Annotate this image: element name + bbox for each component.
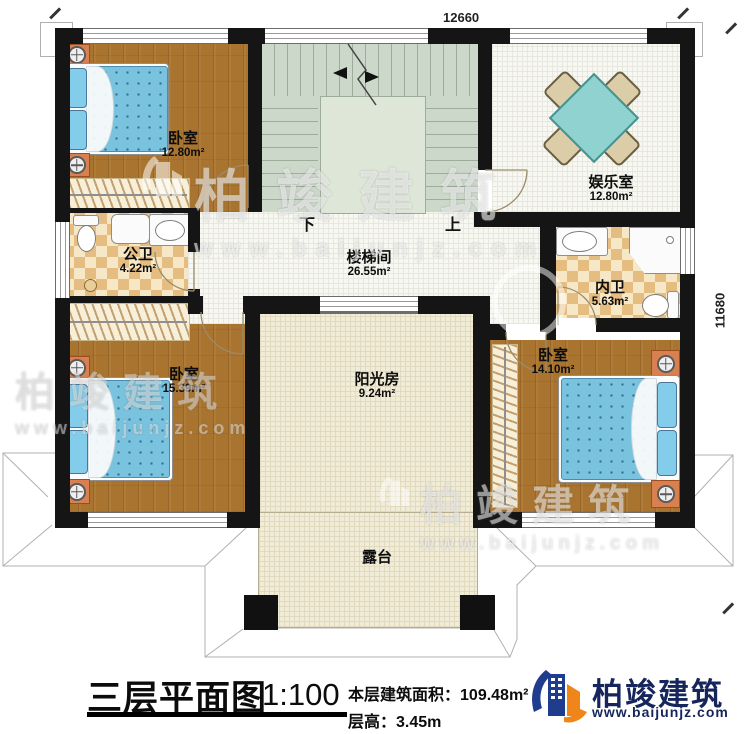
pillow — [67, 68, 87, 108]
room-area: 14.10m² — [532, 364, 575, 377]
room-label-terrace: 露台 — [362, 549, 392, 566]
wall-private-bath-south — [596, 318, 695, 332]
wall-bedroom-nw-east — [248, 44, 262, 212]
wall-bedroom-se-north-a — [490, 324, 506, 340]
room-name: 露台 — [362, 549, 392, 566]
room-name: 公卫 — [120, 246, 156, 263]
wall-private-bath-west — [540, 227, 556, 332]
floor-area-line: 本层建筑面积：109.48m² — [348, 681, 529, 705]
stair-left-flight — [262, 96, 318, 212]
nightstand — [651, 350, 680, 377]
pillow — [67, 110, 87, 150]
room-area: 12.80m² — [588, 191, 633, 204]
room-area: 9.24m² — [354, 388, 399, 401]
room-name: 卧室 — [162, 130, 205, 147]
window-private-bathroom — [680, 228, 695, 274]
window-sunroom-door — [320, 296, 418, 314]
company-logo-icon — [528, 662, 590, 726]
room-name: 娱乐室 — [588, 174, 633, 191]
floor-sunroom — [260, 314, 473, 512]
floor-drain-icon — [84, 279, 97, 292]
wall-bedroom-se-north-b — [546, 324, 556, 340]
room-label-bedroom-nw: 卧室 12.80m² — [162, 130, 205, 160]
room-label-stair-hall: 楼梯间 26.55m² — [346, 249, 391, 279]
lamp-icon — [657, 485, 675, 503]
toilet — [77, 225, 96, 252]
wall-sunroom-east — [473, 296, 490, 512]
stair-landing — [320, 96, 426, 214]
wall-sunroom-north-a — [260, 296, 320, 314]
room-label-public-bathroom: 公卫 4.22m² — [120, 246, 156, 276]
window-bedroom-sw — [88, 512, 227, 528]
bed-sheet — [631, 378, 657, 480]
room-area: 5.63m² — [592, 296, 628, 309]
room-name: 内卫 — [592, 279, 628, 296]
room-label-private-bathroom: 内卫 5.63m² — [592, 279, 628, 309]
wardrobe-rod — [504, 347, 506, 505]
nightstand — [651, 480, 680, 508]
wardrobe-rod — [66, 321, 187, 323]
wall-sunroom-west — [245, 296, 260, 512]
lamp-icon — [68, 359, 86, 377]
toilet — [642, 294, 669, 317]
wardrobe-bedroom-nw — [63, 178, 190, 212]
window-stairwell — [265, 28, 428, 44]
bed-bedroom-se — [558, 375, 680, 483]
floor-plan-canvas: 卧室 12.80m² 娱乐室 12.80m² 公卫 4.22m² 楼梯间 26.… — [0, 0, 750, 734]
stair-down-label: 下 — [299, 211, 315, 235]
stair-up-label: 上 — [445, 211, 461, 235]
pillow — [67, 384, 88, 428]
floor-terrace — [258, 512, 478, 628]
stair-right-flight — [424, 96, 478, 212]
room-label-bedroom-se: 卧室 14.10m² — [532, 347, 575, 377]
window-bedroom-se — [522, 512, 655, 528]
room-area: 12.80m² — [162, 147, 205, 160]
wardrobe-bedroom-se — [492, 344, 518, 508]
room-area: 4.22m² — [120, 263, 156, 276]
room-label-sunroom: 阳光房 9.24m² — [354, 371, 399, 401]
wall-public-bath-south — [55, 296, 188, 303]
wardrobe-bedroom-sw — [63, 303, 190, 341]
company-website: www.baijunjz.com — [592, 704, 729, 720]
dimension-tick — [677, 7, 689, 19]
wall-east — [680, 28, 695, 528]
wall-entertainment-west — [478, 44, 492, 170]
lamp-icon — [68, 483, 86, 501]
window-public-bathroom — [55, 222, 70, 298]
shower-drain-icon — [666, 236, 674, 244]
dimension-tick — [49, 7, 61, 19]
floor-height-value: 3.45m — [396, 714, 441, 731]
room-area: 26.55m² — [346, 266, 391, 279]
room-name: 卧室 — [163, 366, 206, 383]
room-label-entertainment: 娱乐室 12.80m² — [588, 174, 633, 204]
pillow — [67, 430, 88, 474]
plan-scale: 1:100 — [262, 677, 340, 713]
room-name: 阳光房 — [354, 371, 399, 388]
bed-bedroom-sw — [63, 377, 173, 481]
lamp-icon — [68, 156, 86, 174]
sink — [562, 231, 597, 252]
floor-area-value: 109.48m² — [460, 687, 529, 704]
wall-sunroom-north-b — [418, 296, 473, 314]
floor-height-line: 层高：3.45m — [348, 708, 441, 732]
dimension-right: 11680 — [713, 279, 728, 343]
room-area: 15.39m² — [163, 383, 206, 396]
wall-bedroom-sw-north-a — [188, 296, 203, 314]
pillow — [657, 430, 677, 476]
washing-machine — [111, 214, 150, 244]
floor-height-label: 层高： — [348, 714, 396, 731]
dimension-top: 12660 — [443, 10, 479, 25]
bed-bedroom-nw — [63, 63, 169, 155]
logo-building-orange — [567, 684, 580, 716]
dimension-tick — [725, 22, 737, 34]
stair-upper-flight — [262, 42, 478, 96]
room-label-bedroom-sw: 卧室 15.39m² — [163, 366, 206, 396]
lamp-icon — [657, 355, 675, 373]
wardrobe-rod — [66, 194, 187, 196]
room-name: 卧室 — [532, 347, 575, 364]
window-entertainment — [510, 28, 647, 44]
logo-tower — [548, 674, 565, 716]
sink — [155, 220, 185, 241]
terrace-pillar — [244, 595, 278, 630]
terrace-pillar — [460, 595, 495, 630]
window-bedroom-nw — [83, 28, 228, 44]
wall-public-bath-east-a — [188, 208, 200, 252]
pillow — [657, 382, 677, 428]
wall-entertainment-south — [474, 212, 695, 227]
floor-area-label: 本层建筑面积： — [348, 687, 460, 704]
dimension-tick — [722, 602, 734, 614]
room-name: 楼梯间 — [346, 249, 391, 266]
lamp-icon — [68, 46, 86, 64]
wall-closet-divider — [63, 208, 188, 213]
